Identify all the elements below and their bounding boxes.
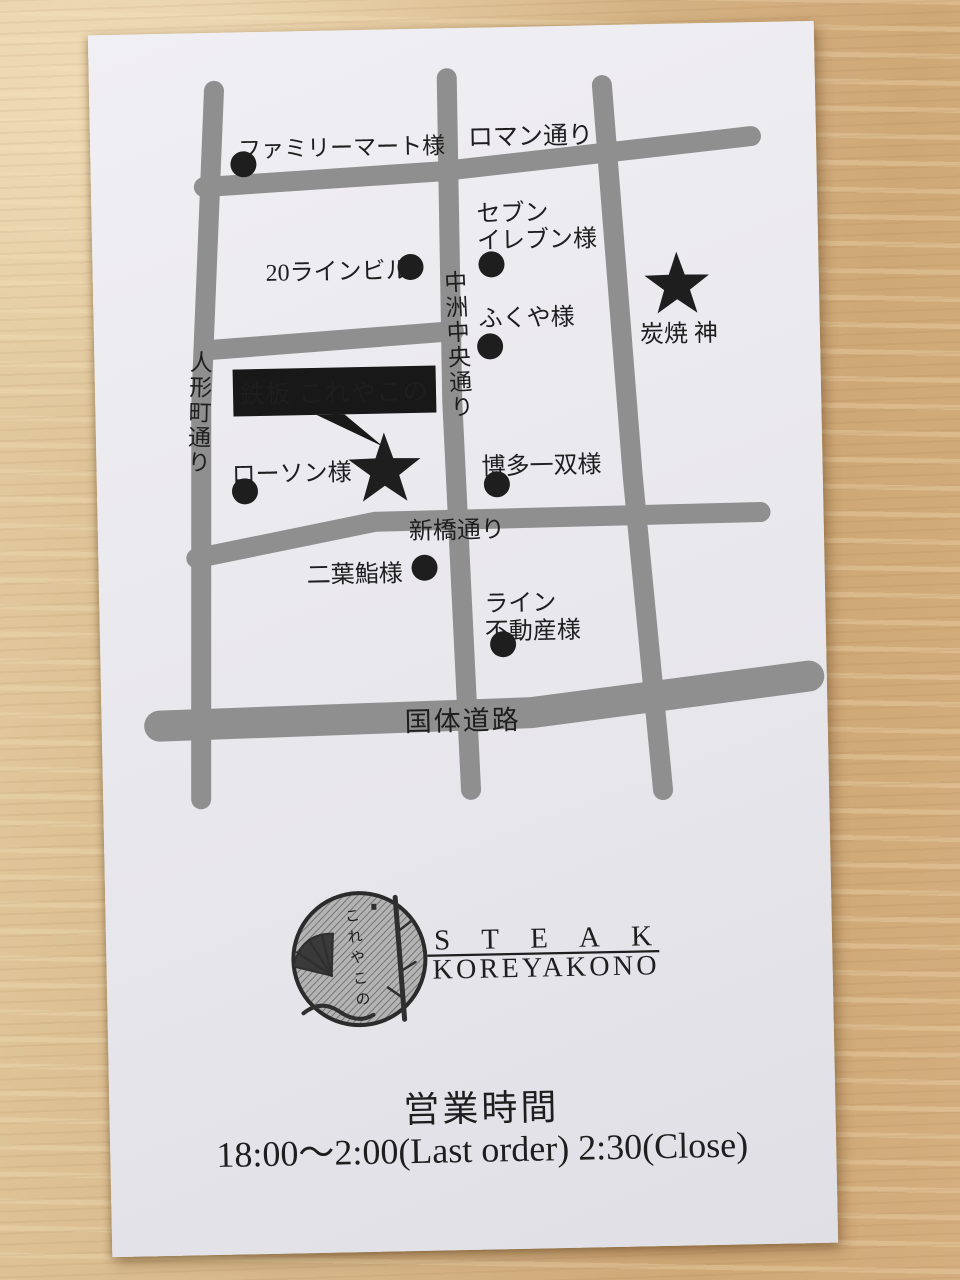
label-futaba-sushi: 二葉鮨様 (306, 560, 403, 589)
star-restaurant-location (348, 432, 422, 502)
map-card-artwork: ロマン通り 中洲中央通り 人形町通り 新橋通り 国体道路 ファミリーマー (88, 21, 838, 1257)
label-hakata-issou: 博多一双様 (481, 451, 602, 480)
destination-callout: 鉄板 これやこの (233, 365, 438, 449)
label-seven-eleven-line2: イレブン様 (477, 225, 598, 254)
hours-heading: 営業時間 (403, 1087, 560, 1130)
label-line20-building: 20ラインビル (265, 257, 410, 287)
street-network (147, 71, 811, 800)
label-sumiyaki-jin: 炭焼 神 (640, 320, 719, 349)
label-line-fudosan-line1: ライン (484, 590, 557, 617)
dot-fukuya (477, 333, 504, 360)
logo-koreyakono-text: KOREYAKONO (432, 950, 657, 985)
callout-tail (316, 414, 383, 448)
label-fukuya: ふくや様 (478, 304, 575, 333)
dot-seven-eleven (478, 251, 505, 278)
label-familymart: ファミリーマート様 (238, 133, 445, 162)
street-middle-horizontal (210, 331, 454, 350)
dot-futaba-sushi (411, 554, 438, 581)
street-label-shinbashi-dori: 新橋通り (409, 516, 506, 545)
label-lawson: ローソン様 (231, 459, 352, 488)
hours-schedule: 18:00〜2:00(Last order) 2:30(Close) (216, 1124, 749, 1175)
label-line-fudosan-line2: 不動産様 (485, 617, 582, 646)
street-label-kokutai-doro: 国体道路 (404, 705, 521, 737)
street-nakasu-chuo-dori (446, 78, 471, 790)
business-card: ロマン通り 中洲中央通り 人形町通り 新橋通り 国体道路 ファミリーマー (88, 21, 838, 1257)
street-label-roman-dori: ロマン通り (468, 122, 594, 152)
label-seven-eleven-line1: セブン (476, 199, 549, 227)
star-sumiyaki-jin (644, 251, 710, 314)
stamp-seal-mark (371, 904, 376, 910)
street-label-ningyocho-dori: 人形町通り (184, 350, 213, 476)
destination-label: 鉄板 これやこの (239, 378, 429, 410)
logo-stamp: これやこの (292, 892, 427, 1027)
